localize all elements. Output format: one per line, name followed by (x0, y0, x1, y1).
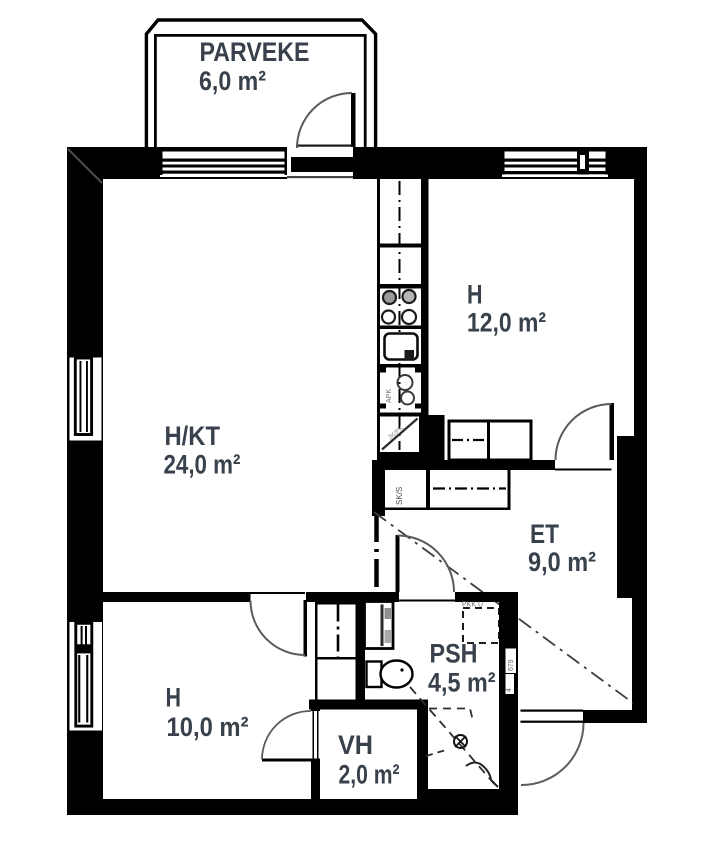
svg-text:10,0 m²: 10,0 m² (167, 712, 249, 742)
svg-text:12,0 m²: 12,0 m² (467, 308, 546, 338)
svg-text:H: H (467, 280, 483, 310)
svg-text:SK/S: SK/S (395, 487, 404, 505)
svg-text:6,0 m²: 6,0 m² (199, 66, 266, 96)
svg-text:PARVEKE: PARVEKE (200, 37, 310, 67)
svg-text:2,0 m²: 2,0 m² (339, 760, 400, 790)
svg-text:APK: APK (386, 389, 393, 403)
svg-text:H/KT: H/KT (165, 421, 221, 451)
svg-text:H: H (166, 683, 182, 713)
svg-text:4: 4 (506, 688, 513, 692)
svg-text:9,0 m²: 9,0 m² (528, 547, 596, 577)
svg-text:679: 679 (508, 659, 515, 671)
svg-text:ET: ET (530, 519, 559, 549)
svg-text:VH: VH (338, 730, 373, 760)
svg-text:4,5 m²: 4,5 m² (428, 668, 496, 698)
svg-text:PSH: PSH (430, 639, 478, 669)
svg-text:24,0 m²: 24,0 m² (164, 450, 241, 480)
